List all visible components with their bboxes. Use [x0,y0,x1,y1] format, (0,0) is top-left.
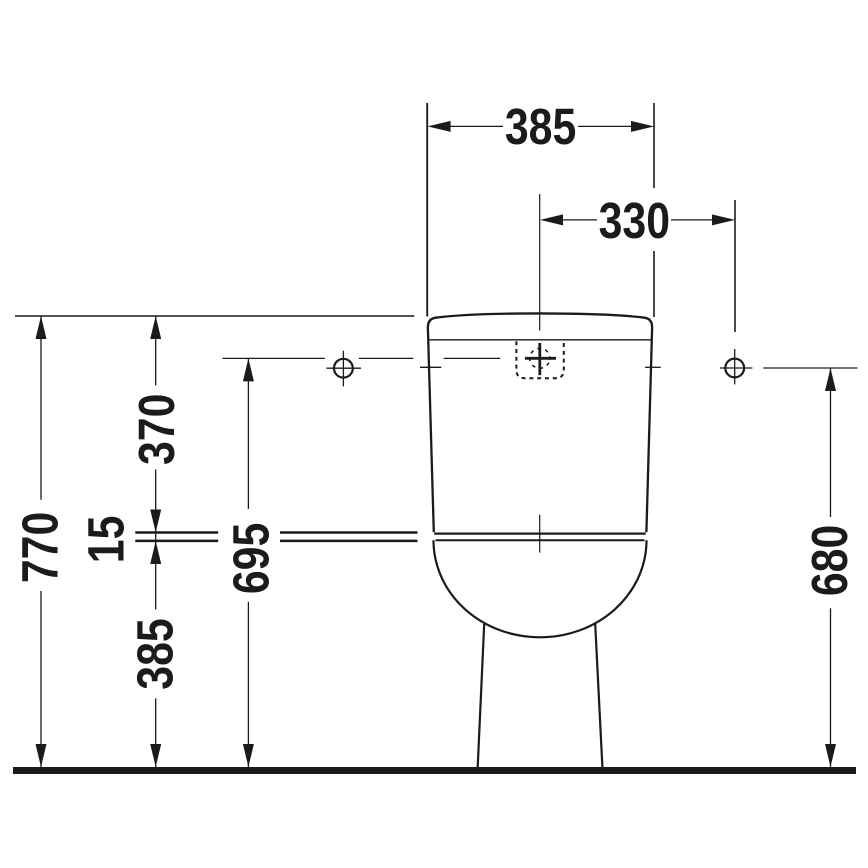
svg-text:680: 680 [801,525,858,596]
svg-text:770: 770 [11,512,68,583]
svg-text:695: 695 [222,523,279,594]
svg-text:385: 385 [505,97,576,154]
svg-text:15: 15 [77,516,134,564]
svg-text:330: 330 [599,191,670,248]
svg-text:385: 385 [126,618,183,689]
svg-text:370: 370 [127,394,184,465]
